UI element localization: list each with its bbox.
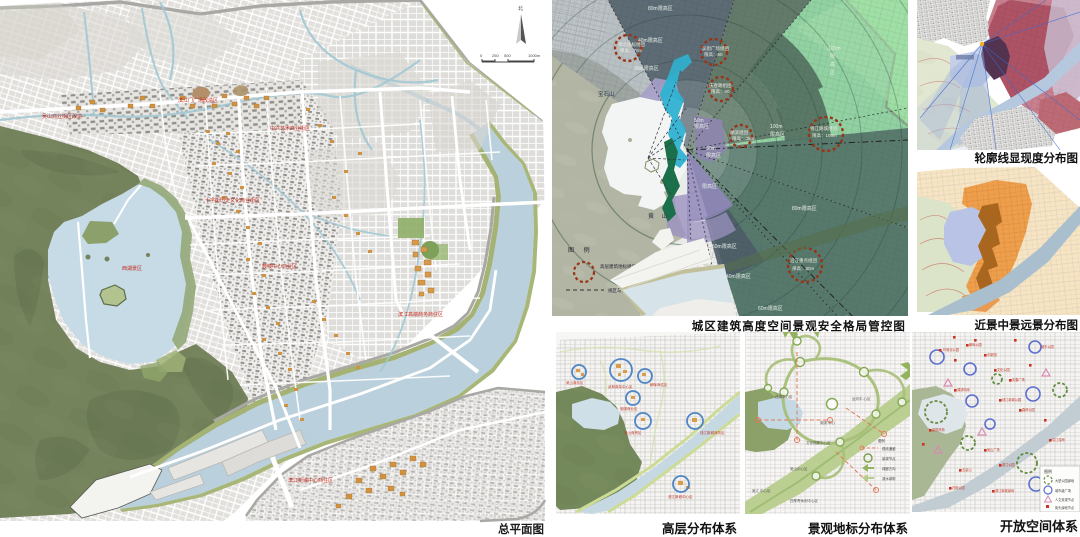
svg-text:限高区: 限高区 [706, 152, 721, 159]
svg-text:轮廓线显现度分布图: 轮廓线显现度分布图 [975, 151, 1079, 165]
svg-text:大型公园绿地: 大型公园绿地 [1055, 478, 1075, 483]
svg-text:湖滨 中心: 湖滨 中心 [820, 420, 835, 425]
svg-text:文化公园: 文化公园 [997, 367, 1010, 372]
svg-text:限高：60: 限高：60 [704, 51, 723, 58]
svg-text:滨江新城中心区: 滨江新城中心区 [668, 494, 693, 499]
svg-text:城市级广场: 城市级广场 [1055, 488, 1071, 493]
svg-text:吴山商贸区: 吴山商贸区 [624, 430, 642, 435]
svg-text:80m限高区: 80m限高区 [648, 5, 673, 12]
svg-text:250: 250 [492, 53, 499, 58]
svg-text:曲院风荷: 曲院风荷 [932, 427, 946, 432]
svg-text:沿江湿地: 沿江湿地 [1052, 437, 1066, 442]
svg-text:40m限高区: 40m限高区 [638, 37, 663, 44]
svg-text:开放空间体系: 开放空间体系 [1000, 519, 1078, 534]
svg-text:城东公园: 城东公园 [1041, 344, 1054, 349]
svg-text:黄 山: 黄 山 [648, 212, 671, 220]
svg-text:湖滨组团: 湖滨组团 [730, 129, 748, 136]
svg-text:滨江新城中心商住区: 滨江新城中心商住区 [288, 477, 333, 484]
svg-text:限: 限 [830, 53, 835, 60]
svg-text:环城北公园: 环城北公园 [943, 347, 959, 352]
svg-text:图 例: 图 例 [568, 246, 594, 254]
svg-text:限高区: 限高区 [694, 123, 709, 130]
svg-text:朝晖商住区: 朝晖商住区 [650, 382, 668, 387]
svg-text:吴山中心区: 吴山中心区 [790, 466, 808, 471]
svg-text:高: 高 [830, 61, 835, 68]
svg-text:庆春路组团: 庆春路组团 [709, 82, 732, 89]
svg-text:40m限高区: 40m限高区 [726, 273, 751, 280]
svg-text:鼓楼中心商业区: 鼓楼中心商业区 [262, 263, 297, 270]
svg-text:吴街广场组团: 吴街广场组团 [702, 45, 729, 52]
svg-text:限高：70m: 限高：70m [620, 47, 643, 54]
svg-text:60m限高区: 60m限高区 [758, 305, 783, 312]
svg-text:玉皇山: 玉皇山 [962, 467, 972, 472]
svg-text:视线通廊: 视线通廊 [882, 446, 896, 451]
svg-text:城区建筑高度空间景观安全格局管控图: 城区建筑高度空间景观安全格局管控图 [692, 319, 906, 333]
svg-text:绿廊方向: 绿廊方向 [882, 466, 896, 471]
svg-text:30m限高区: 30m限高区 [634, 65, 659, 72]
svg-text:限高区: 限高区 [770, 131, 785, 138]
svg-text:限高：35m: 限高：35m [732, 135, 755, 142]
svg-text:东新园: 东新园 [987, 352, 997, 357]
svg-text:四季青休闲中心区: 四季青休闲中心区 [790, 498, 818, 503]
svg-text:滨江公园: 滨江公园 [1002, 462, 1015, 467]
svg-text:100m: 100m [770, 124, 783, 130]
svg-text:森林公园: 森林公园 [1022, 407, 1035, 412]
svg-text:景观节点: 景观节点 [882, 456, 896, 461]
svg-text:文化视廊中心区: 文化视廊中心区 [806, 440, 831, 445]
svg-text:滨江门广场改造区: 滨江门广场改造区 [178, 97, 218, 104]
svg-text:西湖中心区: 西湖中心区 [775, 394, 793, 399]
svg-text:限高：100m: 限高：100m [812, 132, 837, 139]
svg-text:滨水绿带: 滨水绿带 [882, 476, 896, 481]
svg-text:吴山广场: 吴山广场 [987, 447, 1000, 452]
svg-text:限高区: 限高区 [702, 183, 717, 190]
svg-text:滨江高端商务商住区: 滨江高端商务商住区 [398, 311, 443, 318]
svg-text:钱江新城公园: 钱江新城公园 [1002, 397, 1021, 402]
svg-text:近景中景远景分布图: 近景中景远景分布图 [975, 318, 1079, 332]
svg-text:中兴艺术商业街区: 中兴艺术商业街区 [270, 125, 310, 132]
svg-text:沿江重点组团: 沿江重点组团 [790, 257, 817, 264]
svg-text:钱江新城商务区: 钱江新城商务区 [700, 430, 725, 435]
svg-text:钱江路城组团: 钱江路城组团 [810, 125, 837, 132]
svg-text:限高：80m: 限高：80m [792, 265, 815, 272]
svg-text:500: 500 [504, 53, 511, 58]
svg-text:滨江新城绿地: 滨江新城绿地 [995, 488, 1015, 493]
svg-text:高层分布体系: 高层分布体系 [662, 521, 738, 536]
svg-text:吴江 中心区: 吴江 中心区 [752, 488, 771, 493]
svg-text:图例: 图例 [1044, 468, 1052, 474]
svg-text:湖滨晴雨: 湖滨晴雨 [957, 387, 971, 392]
svg-text:图例: 图例 [878, 438, 885, 443]
svg-text:1000m: 1000m [528, 53, 541, 58]
svg-text:区: 区 [830, 70, 835, 76]
svg-text:武林商务中心区: 武林商务中心区 [608, 384, 633, 389]
svg-text:吴山商务区: 吴山商务区 [566, 380, 584, 385]
svg-text:景观地标分布体系: 景观地标分布体系 [808, 521, 909, 536]
svg-text:庆春广场: 庆春广场 [1012, 377, 1025, 382]
svg-text:30m: 30m [706, 146, 716, 152]
svg-text:西湖景区: 西湖景区 [122, 265, 142, 272]
svg-text:100m: 100m [828, 46, 841, 52]
svg-text:北: 北 [518, 5, 523, 12]
svg-text:80m限高区: 80m限高区 [792, 205, 817, 212]
svg-text:运河中 心区: 运河中 心区 [852, 396, 871, 401]
svg-text:街头绿地节点: 街头绿地节点 [1055, 505, 1075, 510]
svg-text:50m限高区: 50m限高区 [712, 243, 737, 250]
svg-text:宝石山: 宝石山 [598, 90, 615, 98]
svg-text:湖滨商业区: 湖滨商业区 [620, 406, 638, 411]
svg-text:朝晖公园: 朝晖公园 [969, 342, 982, 347]
svg-text:白塔公园: 白塔公园 [952, 485, 965, 490]
svg-text:吴山商业街区改造: 吴山商业街区改造 [42, 113, 82, 120]
svg-text:人文景观节点: 人文景观节点 [1055, 497, 1075, 502]
svg-text:十字街历史文化商业街区: 十字街历史文化商业街区 [205, 197, 260, 204]
svg-text:限高：60: 限高：60 [711, 88, 730, 95]
svg-text:总平面图: 总平面图 [498, 522, 544, 536]
